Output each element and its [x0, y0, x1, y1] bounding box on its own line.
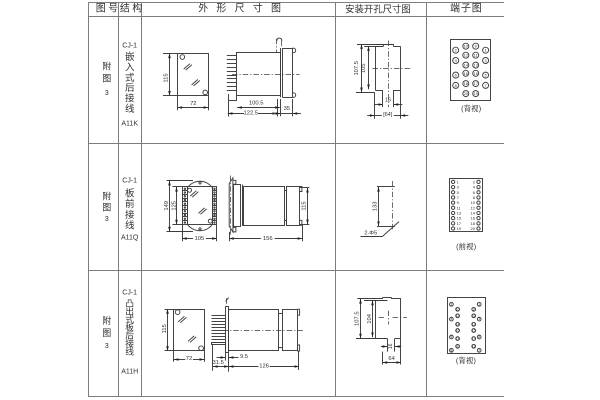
svg-text:12: 12: [464, 53, 468, 58]
svg-text:11: 11: [474, 53, 478, 58]
svg-text:式: 式: [125, 72, 135, 84]
svg-text:72: 72: [186, 356, 192, 362]
svg-text:18: 18: [456, 337, 460, 341]
svg-text:149: 149: [164, 201, 170, 211]
svg-text:图: 图: [102, 328, 111, 338]
svg-text:图: 图: [102, 74, 111, 84]
svg-text:2: 2: [455, 48, 457, 53]
svg-text:15: 15: [472, 329, 476, 333]
svg-text:12: 12: [456, 314, 460, 318]
svg-text:附: 附: [102, 191, 111, 202]
svg-text:3: 3: [485, 58, 487, 63]
svg-text:3: 3: [105, 341, 109, 350]
svg-text:附: 附: [102, 60, 111, 71]
svg-text:20: 20: [456, 344, 460, 348]
svg-text:122.5: 122.5: [244, 110, 259, 116]
svg-text:15: 15: [474, 71, 478, 76]
svg-text:附: 附: [102, 315, 111, 326]
svg-text:2-Φ5: 2-Φ5: [364, 230, 377, 236]
svg-text:A11Q: A11Q: [121, 235, 139, 242]
svg-text:5: 5: [478, 335, 480, 339]
svg-text:CJ-1: CJ-1: [122, 43, 137, 50]
svg-text:13: 13: [472, 322, 476, 326]
svg-text:10: 10: [456, 307, 460, 311]
svg-text:104: 104: [367, 313, 373, 323]
svg-text:13: 13: [474, 63, 478, 68]
svg-text:115: 115: [162, 324, 168, 333]
svg-text:16: 16: [456, 329, 460, 333]
svg-text:19: 19: [457, 226, 462, 231]
svg-text:105: 105: [195, 236, 205, 242]
svg-text:19: 19: [472, 344, 476, 348]
svg-text:125: 125: [171, 201, 177, 211]
svg-text:线: 线: [125, 103, 135, 115]
svg-text:9: 9: [473, 307, 475, 311]
svg-text:图: 图: [102, 203, 111, 213]
svg-text:72: 72: [190, 101, 196, 107]
svg-text:前: 前: [125, 198, 135, 210]
svg-text:1: 1: [485, 48, 487, 53]
svg-text:4: 4: [451, 317, 453, 321]
svg-text:133: 133: [372, 202, 378, 212]
svg-text:126: 126: [259, 364, 269, 370]
svg-text:(背视): (背视): [456, 356, 476, 365]
svg-text:20: 20: [471, 226, 476, 231]
svg-text:图号: 图号: [96, 3, 121, 15]
svg-text:100.5: 100.5: [249, 101, 264, 107]
svg-text:18: 18: [464, 81, 468, 86]
svg-text:接: 接: [125, 209, 135, 221]
svg-text:35: 35: [284, 106, 290, 112]
svg-text:115: 115: [163, 73, 169, 82]
svg-text:64: 64: [388, 356, 395, 362]
svg-text:外形尺寸图: 外形尺寸图: [198, 2, 289, 15]
svg-text:19: 19: [474, 91, 478, 96]
svg-text:线: 线: [125, 220, 135, 232]
svg-text:(前视): (前视): [456, 242, 476, 251]
svg-text:107.5: 107.5: [354, 311, 360, 326]
svg-text:14: 14: [456, 322, 460, 326]
svg-text:16: 16: [464, 71, 468, 76]
svg-text:7: 7: [478, 348, 480, 352]
svg-text:6: 6: [451, 335, 453, 339]
svg-text:CJ-1: CJ-1: [122, 290, 137, 297]
svg-text:1: 1: [478, 302, 480, 306]
svg-text:107.5: 107.5: [354, 61, 360, 76]
svg-text:嵌: 嵌: [125, 51, 135, 63]
svg-text:105: 105: [361, 63, 367, 73]
svg-text:31.5: 31.5: [213, 360, 224, 366]
svg-text:后: 后: [125, 83, 135, 94]
svg-text:5: 5: [485, 73, 487, 78]
svg-text:安装开孔尺寸图: 安装开孔尺寸图: [345, 4, 411, 15]
svg-text:9.5: 9.5: [240, 354, 248, 360]
svg-text:115: 115: [302, 201, 308, 210]
svg-text:入: 入: [125, 62, 135, 73]
svg-text:A11H: A11H: [121, 369, 138, 376]
svg-text:[64]: [64]: [383, 112, 392, 118]
svg-text:2: 2: [451, 302, 453, 306]
svg-text:16: 16: [388, 343, 394, 349]
svg-text:(背视): (背视): [461, 104, 481, 113]
svg-text:端子图: 端子图: [450, 2, 483, 15]
svg-text:8: 8: [451, 348, 453, 352]
svg-text:线: 线: [125, 345, 134, 356]
svg-text:板: 板: [125, 187, 135, 199]
svg-text:3: 3: [478, 317, 480, 321]
svg-text:8: 8: [455, 83, 457, 88]
svg-text:接: 接: [125, 93, 135, 105]
svg-text:CJ-1: CJ-1: [122, 178, 137, 185]
svg-text:6: 6: [455, 73, 457, 78]
svg-text:3: 3: [105, 88, 109, 97]
svg-text:7: 7: [485, 83, 487, 88]
svg-text:A11K: A11K: [121, 121, 138, 128]
svg-text:结构: 结构: [120, 2, 145, 15]
svg-text:156: 156: [263, 236, 273, 242]
svg-text:11: 11: [472, 314, 476, 318]
svg-text:17: 17: [472, 337, 476, 341]
svg-text:3: 3: [105, 214, 109, 223]
svg-text:16: 16: [385, 97, 391, 103]
svg-text:9: 9: [475, 44, 477, 49]
svg-text:17: 17: [474, 81, 478, 86]
